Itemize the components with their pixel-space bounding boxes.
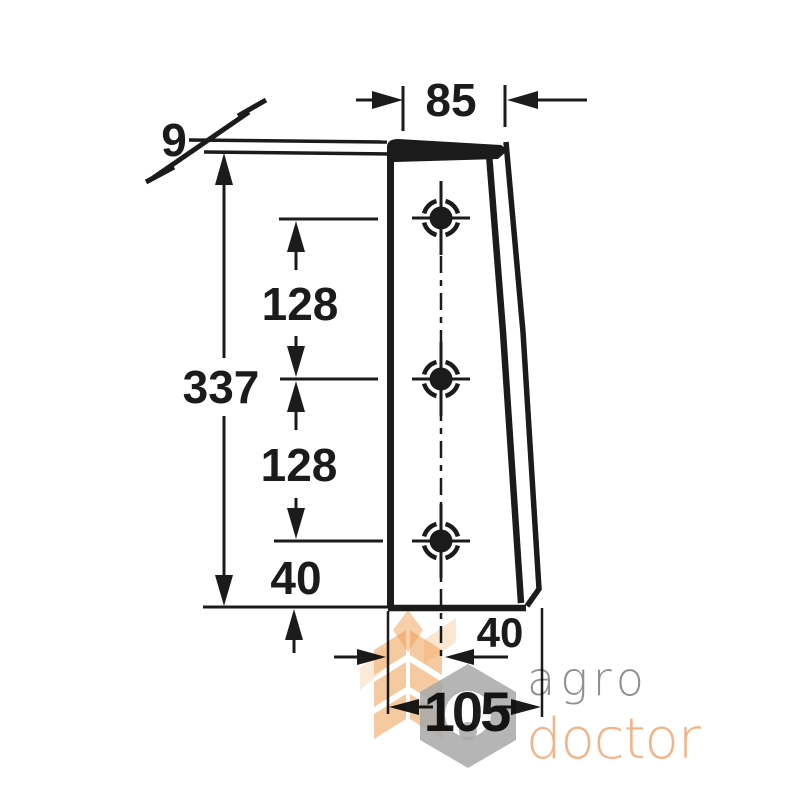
dim-label-total-height: 337	[183, 364, 260, 410]
blade-right-edge-outer	[506, 142, 539, 606]
dim-label-top-width: 85	[425, 77, 476, 123]
arrow-left-icon	[445, 649, 474, 665]
blade-outline	[387, 139, 539, 608]
dimension-drawing	[0, 0, 800, 800]
dim-label-bottom-hole-offset: 40	[270, 555, 321, 601]
dim-label-hole-spacing-upper: 128	[262, 281, 339, 327]
blade-right-edge-inner	[489, 154, 521, 603]
hole-marker-bottom	[412, 504, 470, 578]
arrow-right-icon	[372, 91, 403, 109]
arrow-up-icon	[215, 153, 233, 185]
arrow-left-icon	[389, 699, 419, 715]
dim-label-hole-spacing-lower: 128	[261, 442, 338, 488]
arrow-right-icon	[511, 699, 541, 715]
dim-40-vertical	[203, 607, 389, 653]
arrow-right-icon	[357, 649, 386, 665]
hole-marker-middle	[412, 342, 470, 416]
arrow-left-icon	[507, 91, 538, 109]
dim-label-thickness: 9	[161, 117, 187, 163]
dim-label-bottom-width: 105	[424, 684, 508, 740]
arrow-down-icon	[215, 575, 233, 606]
drawing-canvas: 85 9 337 128 128 40 40 105 agro do	[0, 0, 800, 800]
hole-marker-top	[412, 181, 470, 255]
dim-label-centerline-offset: 40	[477, 612, 524, 654]
